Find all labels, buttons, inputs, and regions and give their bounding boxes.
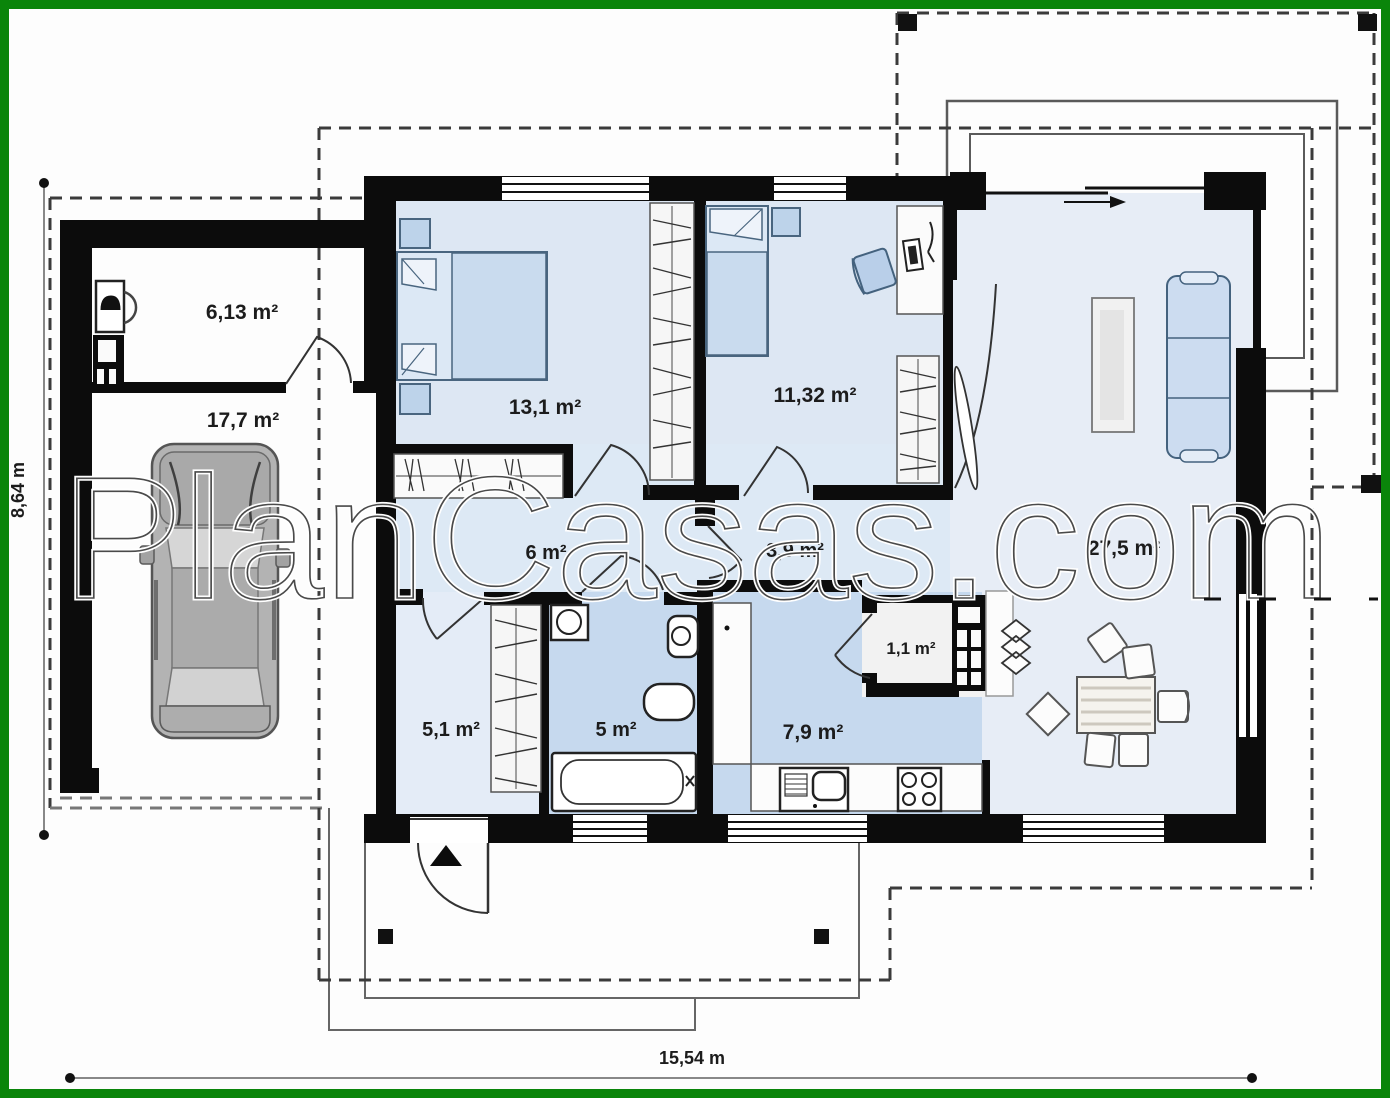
svg-text:15,54 m: 15,54 m	[659, 1048, 725, 1068]
svg-text:PlanCasas.com: PlanCasas.com	[62, 440, 1332, 635]
svg-text:5 m²: 5 m²	[595, 719, 636, 741]
svg-text:8,64 m: 8,64 m	[8, 462, 28, 518]
svg-text:13,1 m²: 13,1 m²	[509, 396, 581, 419]
svg-text:17,7 m²: 17,7 m²	[207, 409, 279, 432]
svg-text:7,9 m²: 7,9 m²	[783, 721, 844, 744]
svg-text:5,1 m²: 5,1 m²	[422, 719, 480, 741]
svg-text:6,13 m²: 6,13 m²	[206, 301, 278, 324]
svg-text:11,32 m²: 11,32 m²	[774, 384, 857, 407]
svg-text:1,1 m²: 1,1 m²	[886, 639, 935, 658]
